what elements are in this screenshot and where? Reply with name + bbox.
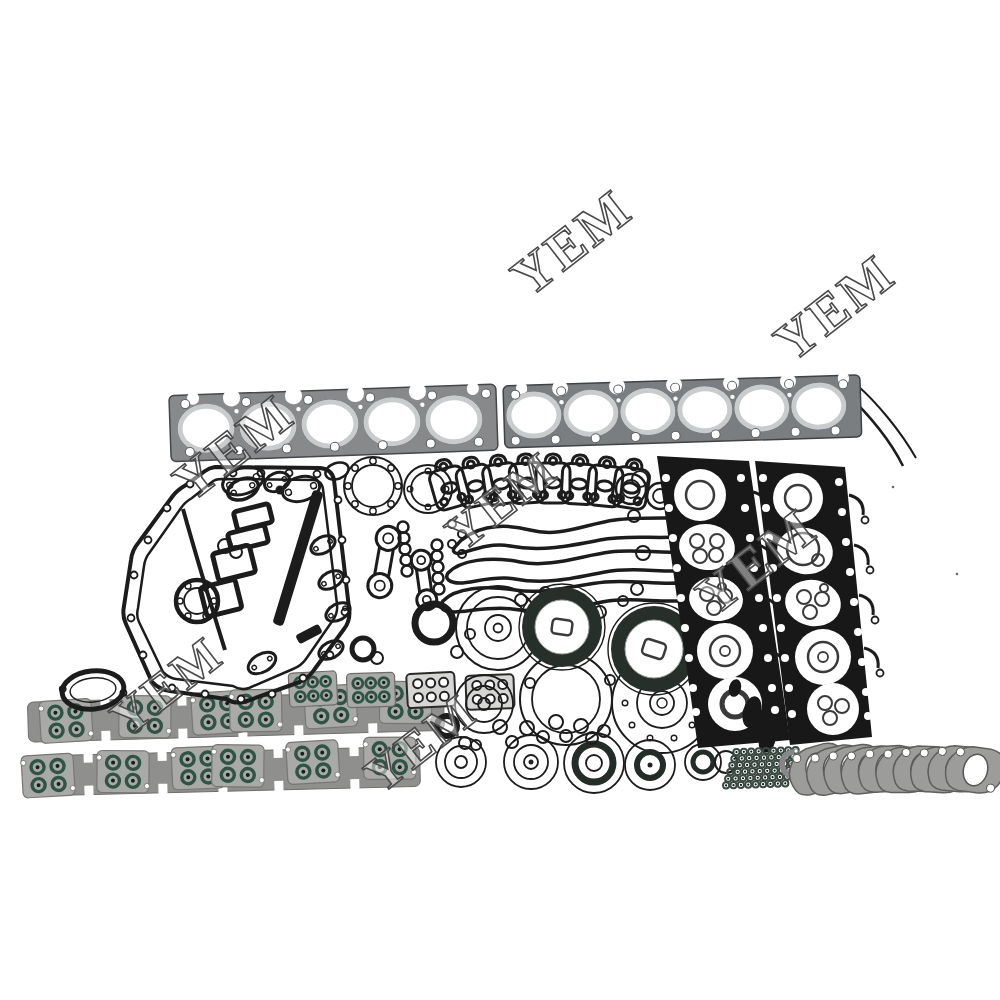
small-green-oring: [755, 775, 761, 781]
small-green-oring: [748, 748, 754, 754]
manifold-port-plate: [211, 745, 265, 788]
manifold-port-plate: [285, 740, 341, 785]
small-green-oring: [766, 761, 772, 767]
small-green-oring: [773, 761, 779, 767]
dust-speck: [892, 486, 895, 489]
small-green-oring: [738, 782, 744, 788]
small-green-oring: [757, 768, 763, 774]
small-green-oring: [746, 755, 752, 761]
crankshaft-oil-seal-1: [519, 584, 605, 670]
small-green-oring: [730, 782, 736, 788]
small-green-oring: [775, 780, 781, 786]
product-photo-stage: YEMYEMYEMYEMYEMYEMYEM: [0, 0, 1000, 1000]
small-green-oring: [737, 762, 743, 768]
small-green-oring: [725, 776, 731, 782]
small-green-oring: [770, 748, 776, 754]
manifold-port-plate: [20, 753, 76, 798]
small-green-oring: [723, 782, 729, 788]
small-green-oring: [749, 768, 755, 774]
small-green-oring: [729, 762, 735, 768]
small-green-oring: [755, 748, 761, 754]
small-green-oring: [768, 754, 774, 760]
small-green-oring: [740, 775, 746, 781]
small-green-oring: [782, 780, 788, 786]
small-green-oring: [733, 749, 739, 755]
small-green-oring: [760, 781, 766, 787]
port-plate-green-orings: [288, 671, 338, 707]
gasket-kit-photo: YEMYEMYEMYEMYEMYEMYEM: [0, 0, 1000, 1000]
small-green-oring: [734, 769, 740, 775]
cylinder-head-gasket-right: [503, 371, 862, 448]
small-green-oring: [764, 768, 770, 774]
small-green-oring: [731, 756, 737, 762]
small-green-oring: [744, 762, 750, 768]
small-green-oring: [762, 774, 768, 780]
small-green-oring: [752, 781, 758, 787]
dust-speck: [956, 573, 959, 576]
small-green-oring: [751, 761, 757, 767]
small-green-oring: [732, 775, 738, 781]
small-green-oring: [741, 749, 747, 755]
manifold-port-plate: [96, 750, 150, 793]
small-green-oring: [753, 755, 759, 761]
small-green-oring: [771, 767, 777, 773]
small-green-oring: [777, 774, 783, 780]
small-green-oring: [759, 761, 765, 767]
small-green-oring: [745, 781, 751, 787]
manifold-port-plate: [38, 698, 94, 743]
small-green-oring: [769, 774, 775, 780]
small-green-oring: [761, 754, 767, 760]
small-green-oring: [763, 748, 769, 754]
small-green-oring: [767, 781, 773, 787]
small-green-oring: [747, 775, 753, 781]
small-green-oring: [739, 755, 745, 761]
small-green-oring: [778, 747, 784, 753]
exhaust-flange-gasket-stack: [785, 739, 1000, 800]
small-green-oring: [727, 769, 733, 775]
port-plate-green-orings: [346, 672, 395, 708]
small-green-oring: [742, 768, 748, 774]
